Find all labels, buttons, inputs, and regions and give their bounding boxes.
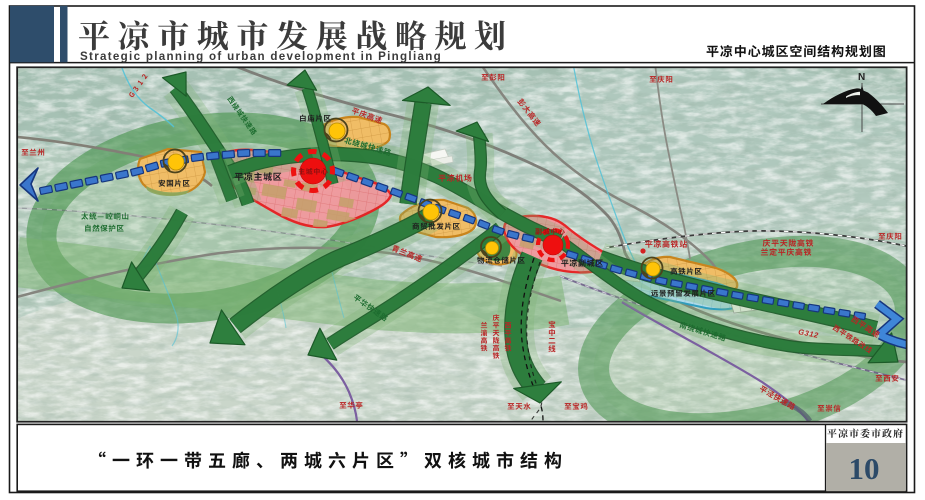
svg-text:Strategic planning of urban de: Strategic planning of urban development … bbox=[80, 50, 442, 63]
svg-text:10: 10 bbox=[849, 451, 880, 486]
svg-text:N: N bbox=[858, 72, 865, 83]
